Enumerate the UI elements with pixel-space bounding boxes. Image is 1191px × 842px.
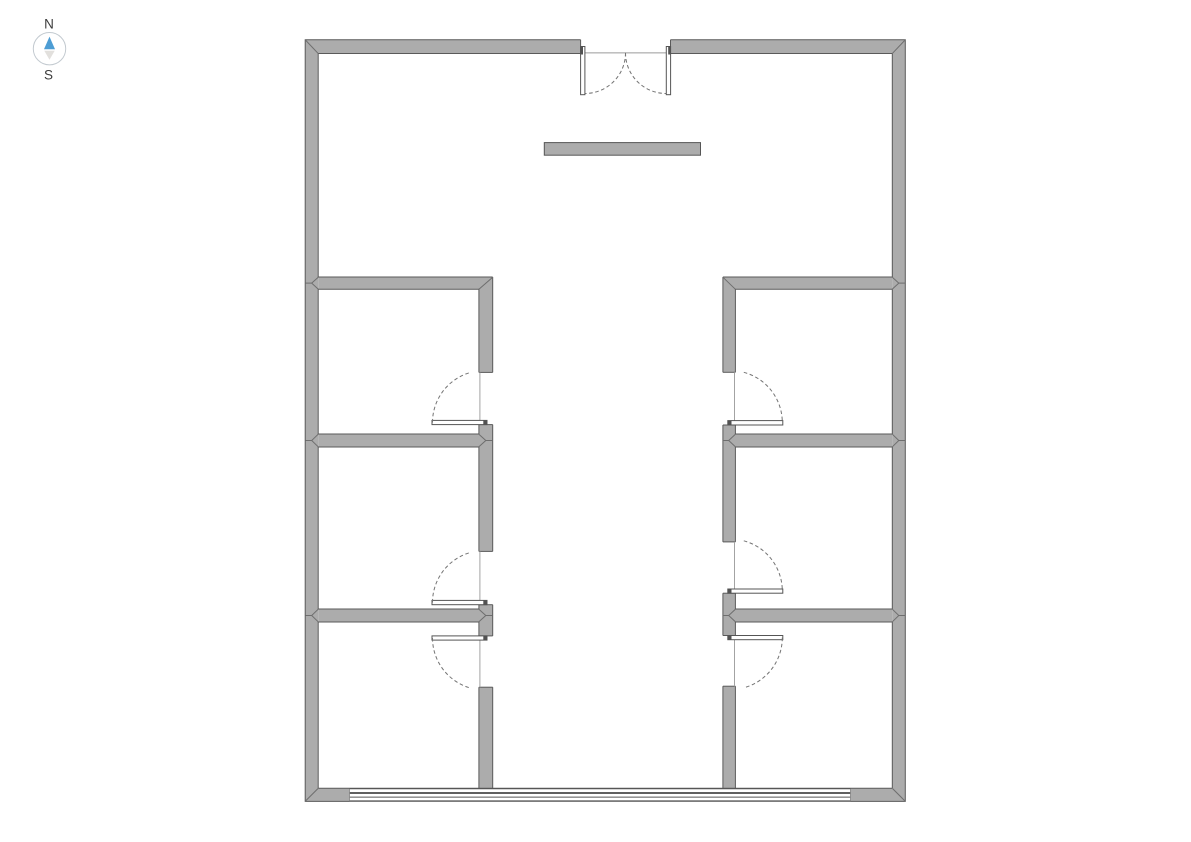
svg-text:S: S [44,68,53,83]
svg-text:N: N [44,17,54,32]
